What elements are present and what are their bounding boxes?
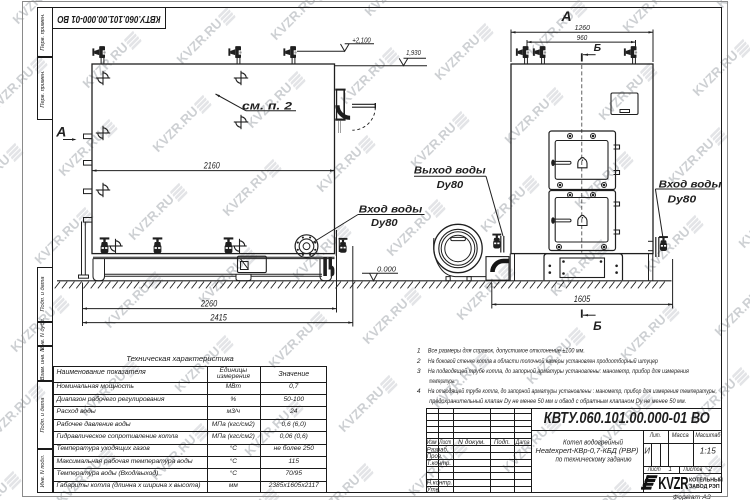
svg-text:КОТЕЛЬНЫЙ: КОТЕЛЬНЫЙ <box>689 475 723 483</box>
svg-text:KVZR.RU: KVZR.RU <box>0 152 13 203</box>
svg-text:KVZR: KVZR <box>658 474 688 492</box>
svg-text:KVZR.RU: KVZR.RU <box>736 200 750 251</box>
svg-text:ЗАВОД РЭП: ЗАВОД РЭП <box>689 484 720 490</box>
